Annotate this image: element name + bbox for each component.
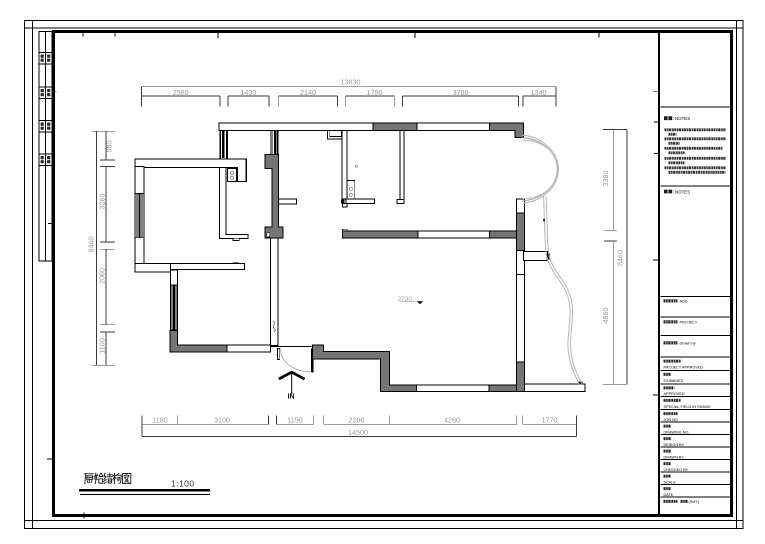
svg-text:PROJECT APPROVED: PROJECT APPROVED — [664, 366, 704, 370]
svg-text:3380: 3380 — [601, 171, 610, 187]
svg-text:CHECKED BY: CHECKED BY — [664, 468, 689, 472]
svg-text:8460: 8460 — [87, 237, 96, 253]
svg-text:1150: 1150 — [287, 416, 302, 425]
svg-text:2140: 2140 — [300, 88, 316, 97]
svg-text:NOTES: NOTES — [675, 189, 690, 194]
svg-text:SPECIAL FIELD IN SHANG: SPECIAL FIELD IN SHANG — [664, 405, 711, 409]
svg-text:(SMT): (SMT) — [689, 500, 700, 504]
svg-text:3100: 3100 — [214, 416, 230, 425]
svg-text:NOTES: NOTES — [675, 116, 690, 121]
svg-text:14500: 14500 — [348, 428, 368, 437]
svg-text:SCALE: SCALE — [664, 481, 677, 485]
svg-text:Drawn by: Drawn by — [680, 342, 696, 346]
svg-text:PROJECT: PROJECT — [680, 321, 698, 325]
svg-text:DESIGN BY: DESIGN BY — [664, 443, 685, 447]
svg-text:1790: 1790 — [367, 88, 383, 97]
svg-text:3260: 3260 — [98, 194, 107, 210]
svg-text:4260: 4260 — [444, 416, 460, 425]
svg-text:8460: 8460 — [616, 250, 625, 266]
svg-text:1100: 1100 — [98, 338, 107, 353]
svg-text:4860: 4860 — [601, 308, 610, 324]
svg-text:1430: 1430 — [240, 88, 256, 97]
svg-text:13830: 13830 — [341, 78, 361, 87]
svg-text:1180: 1180 — [152, 416, 167, 425]
svg-text:DRAWN BY: DRAWN BY — [664, 456, 685, 460]
svg-text:EXAMINED: EXAMINED — [664, 379, 684, 383]
svg-text:2580: 2580 — [173, 88, 189, 97]
svg-text:1340: 1340 — [531, 88, 547, 97]
svg-text:3780: 3780 — [453, 88, 469, 97]
svg-text:980: 980 — [105, 141, 114, 153]
svg-text:JOB NO.: JOB NO. — [664, 418, 679, 422]
svg-text:2200: 2200 — [349, 416, 365, 425]
svg-text:2060: 2060 — [98, 268, 107, 284]
svg-text:1770: 1770 — [542, 416, 558, 425]
svg-text:1:100: 1:100 — [171, 478, 195, 488]
svg-text:IN: IN — [288, 394, 295, 401]
svg-text:DRAWING NO.: DRAWING NO. — [664, 431, 690, 435]
svg-text:DATE: DATE — [664, 493, 674, 497]
svg-text:ADD: ADD — [680, 300, 688, 304]
svg-text:APPROVED: APPROVED — [664, 392, 685, 396]
